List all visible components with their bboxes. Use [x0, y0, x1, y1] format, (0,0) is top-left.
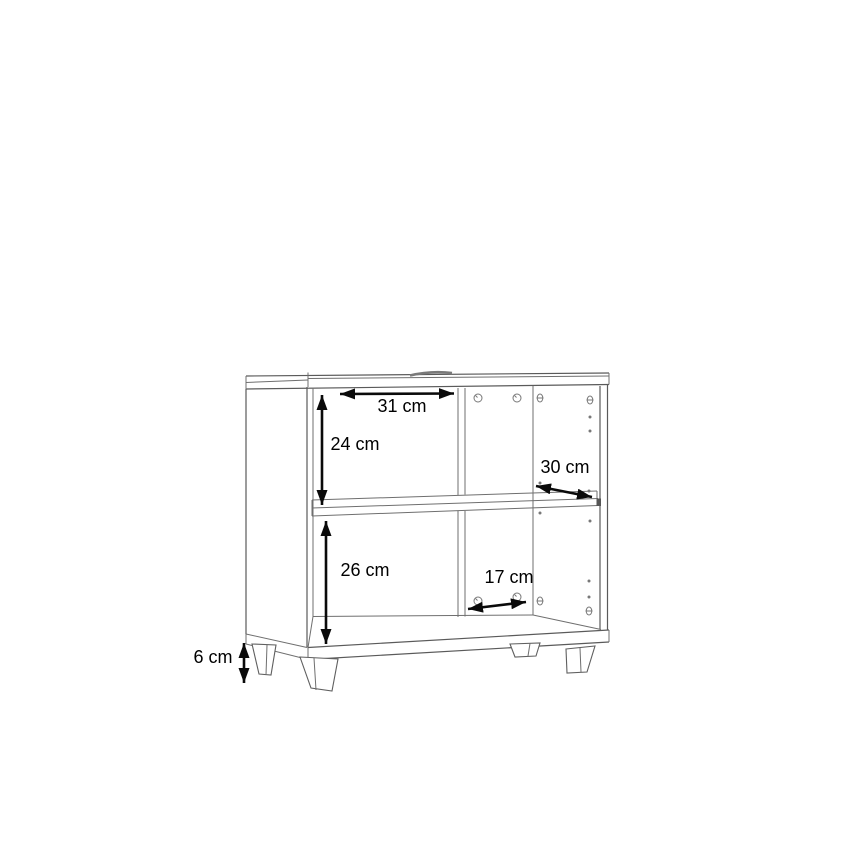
slot-hole — [537, 394, 544, 402]
arrow-31cm — [340, 394, 454, 395]
legs — [252, 643, 595, 691]
dimension-diagram-canvas: 31 cm 24 cm 30 cm 26 cm 17 cm 6 cm — [0, 0, 868, 868]
shelf-pin-holes — [537, 394, 594, 615]
dimension-arrows — [244, 394, 592, 684]
bottom-panel — [308, 615, 609, 660]
leg-back-right — [510, 643, 540, 657]
leg-front-left — [300, 657, 338, 691]
left-side-panel — [246, 387, 313, 660]
slot-hole — [537, 597, 544, 605]
back-panel — [313, 615, 533, 617]
dimension-label-hole-spacing: 17 cm — [484, 567, 533, 587]
slot-hole — [587, 396, 594, 404]
cam-hole — [513, 394, 521, 402]
dimension-label-leg-height: 6 cm — [193, 647, 232, 667]
dimension-label-upper-width: 31 cm — [377, 396, 426, 416]
slot-hole — [586, 607, 593, 615]
leg-front-right — [566, 646, 595, 673]
top-panel — [246, 372, 609, 389]
dimension-label-lower-height: 26 cm — [340, 560, 389, 580]
arrow-17cm — [468, 602, 526, 609]
cam-hole — [474, 597, 482, 605]
cam-hole — [513, 593, 521, 601]
dimension-label-depth: 30 cm — [540, 457, 589, 477]
middle-shelf — [312, 491, 601, 516]
leg-back-left — [252, 644, 276, 675]
dimension-label-upper-height: 24 cm — [330, 434, 379, 454]
cam-hole — [474, 394, 482, 402]
cabinet-drawing — [0, 0, 868, 868]
